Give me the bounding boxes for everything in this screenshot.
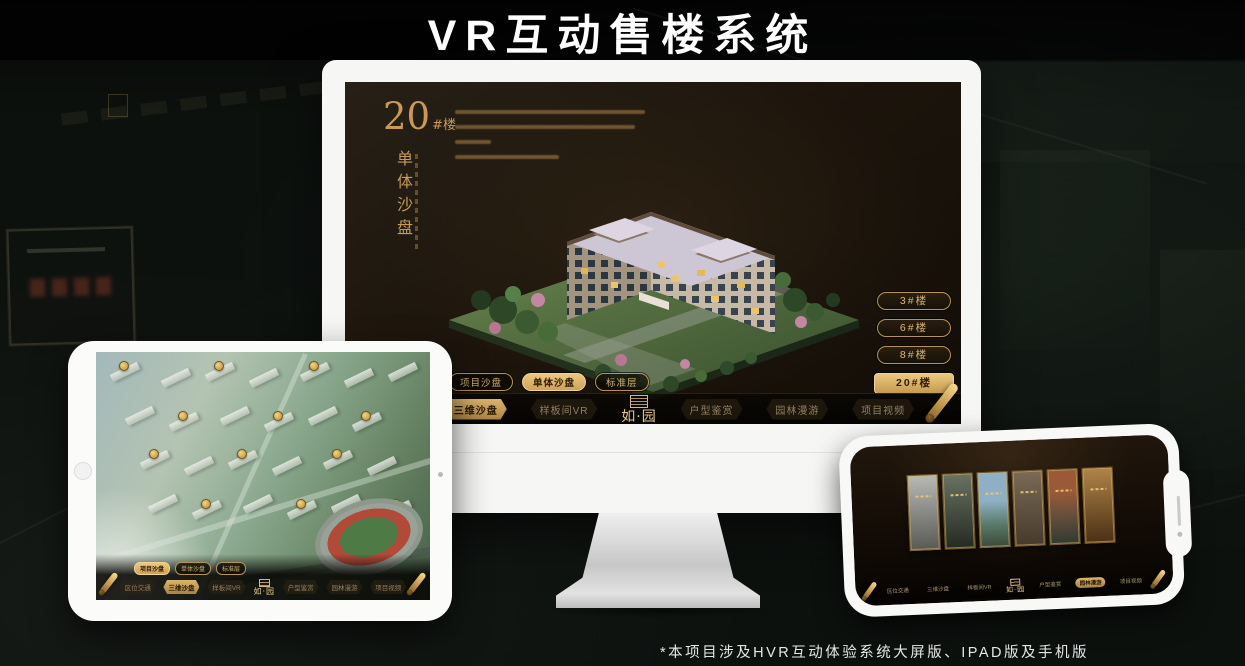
nav-item-garden-roam[interactable]: 园林漫游: [326, 580, 362, 594]
tab-single-sandbox[interactable]: 单体沙盘: [175, 562, 211, 575]
tab-single-sandbox[interactable]: 单体沙盘: [522, 373, 586, 391]
nav-item-project-video[interactable]: 项目视频: [1116, 575, 1146, 586]
phone-frame: 区位交通 三维沙盘 样板间VR 如·园 户型鉴赏 园林漫游 项目视频: [838, 423, 1185, 618]
tablet-frame: 项目沙盘 单体沙盘 标准层 区位交通 三维沙盘 样板间VR 如·园 户型鉴赏: [68, 341, 452, 621]
nav-item-3d-sandbox[interactable]: 三维沙盘: [163, 580, 199, 594]
building-selector: 3#楼 6#楼 8#楼 20#楼: [872, 292, 956, 403]
scroll-menu-icon[interactable]: [1151, 569, 1166, 587]
phone-navbar: 区位交通 三维沙盘 样板间VR 如·园 户型鉴赏 园林漫游 项目视频: [855, 568, 1174, 603]
card-caption-marks: [1020, 491, 1036, 494]
nav-item-garden-roam[interactable]: 园林漫游: [766, 399, 828, 420]
building-button-8[interactable]: 8#楼: [877, 346, 951, 364]
card-caption-marks: [1090, 488, 1106, 491]
tab-project-sandbox[interactable]: 项目沙盘: [449, 373, 513, 391]
nav-item-floorplans[interactable]: 户型鉴赏: [1035, 579, 1065, 590]
scroll-menu-icon[interactable]: [99, 572, 119, 595]
nav-item-showroom-vr[interactable]: 样板间VR: [963, 582, 996, 593]
brand-logo[interactable]: 如·园: [253, 579, 275, 596]
description-text-line: [455, 140, 491, 144]
section-subtitle-marks: [415, 154, 418, 250]
nav-item-showroom-vr[interactable]: 样板间VR: [531, 399, 598, 420]
scene-card-gallery: [907, 467, 1116, 552]
nav-item-project-video[interactable]: 项目视频: [370, 580, 406, 594]
card-caption-marks: [950, 494, 966, 497]
scene-card[interactable]: [942, 472, 976, 549]
background-photo: [980, 62, 1245, 162]
scene-card[interactable]: [1047, 468, 1081, 545]
brand-seal-icon: [630, 395, 648, 408]
section-title-vertical: 单体沙盘: [391, 150, 415, 242]
tablet-camera-dot: [438, 472, 443, 477]
sandbox-sub-tabs: 项目沙盘 单体沙盘 标准层: [449, 373, 649, 391]
tablet-sub-tabs: 项目沙盘 单体沙盘 标准层: [134, 562, 246, 575]
footnote: *本项目涉及HVR互动体验系统大屏版、IPAD版及手机版: [660, 641, 1089, 662]
nav-item-location[interactable]: 区位交通: [883, 585, 913, 596]
scene-card[interactable]: [907, 474, 941, 551]
tablet-navbar: 区位交通 三维沙盘 样板间VR 如·园 户型鉴赏 园林漫游 项目视频: [96, 575, 430, 599]
tab-standard-floor[interactable]: 标准层: [216, 562, 246, 575]
tablet-screen: 项目沙盘 单体沙盘 标准层 区位交通 三维沙盘 样板间VR 如·园 户型鉴赏: [96, 352, 430, 600]
phone-camera-dot: [1177, 532, 1182, 537]
brand-logo[interactable]: 如·园: [1005, 578, 1025, 594]
brand-seal-icon: [259, 579, 270, 587]
page-title: VR互动售楼系统: [0, 1, 1245, 63]
building-button-3[interactable]: 3#楼: [877, 292, 951, 310]
nav-item-3d-sandbox[interactable]: 三维沙盘: [923, 583, 953, 594]
nav-item-3d-sandbox[interactable]: 三维沙盘: [445, 399, 507, 420]
block-suffix: #楼: [432, 118, 456, 133]
phone-scene-lintel: [913, 437, 1104, 461]
card-caption-marks: [985, 492, 1001, 495]
scene-card[interactable]: [1012, 469, 1046, 546]
block-number: 20: [383, 95, 430, 138]
nav-item-showroom-vr[interactable]: 样板间VR: [207, 580, 246, 594]
scroll-menu-icon[interactable]: [862, 581, 877, 599]
scroll-menu-icon[interactable]: [407, 572, 427, 595]
scene-card[interactable]: [977, 471, 1011, 548]
scene-card[interactable]: [1082, 467, 1116, 544]
background-seal-mark: [108, 94, 128, 117]
building-model: [443, 150, 863, 400]
tablet-home-button: [74, 462, 92, 480]
card-caption-marks: [915, 495, 931, 498]
phone-notch: [1163, 469, 1193, 557]
brand-seal-icon: [1010, 578, 1020, 585]
brand-logo[interactable]: 如·园: [621, 395, 656, 424]
phone-speaker: [1177, 496, 1181, 526]
nav-item-floorplans[interactable]: 户型鉴赏: [681, 399, 743, 420]
building-button-6[interactable]: 6#楼: [877, 319, 951, 337]
background-plaque: [7, 226, 136, 345]
tab-standard-floor[interactable]: 标准层: [595, 373, 649, 391]
description-text-line: [455, 125, 635, 129]
stage: VR互动售楼系统 20#楼 单体沙盘: [0, 0, 1245, 666]
phone-screen: 区位交通 三维沙盘 样板间VR 如·园 户型鉴赏 园林漫游 项目视频: [849, 434, 1173, 606]
tablet-nav-overlay: 项目沙盘 单体沙盘 标准层 区位交通 三维沙盘 样板间VR 如·园 户型鉴赏: [96, 554, 430, 600]
nav-item-floorplans[interactable]: 户型鉴赏: [283, 580, 319, 594]
nav-item-project-video[interactable]: 项目视频: [852, 399, 914, 420]
background-photo: [1000, 150, 1150, 350]
tab-project-sandbox[interactable]: 项目沙盘: [134, 562, 170, 575]
nav-item-garden-roam[interactable]: 园林漫游: [1075, 577, 1105, 588]
card-caption-marks: [1055, 489, 1071, 492]
nav-item-location[interactable]: 区位交通: [120, 580, 156, 594]
block-title: 20#楼: [383, 98, 456, 135]
description-text-line: [455, 110, 645, 114]
building-button-20[interactable]: 20#楼: [874, 373, 954, 394]
